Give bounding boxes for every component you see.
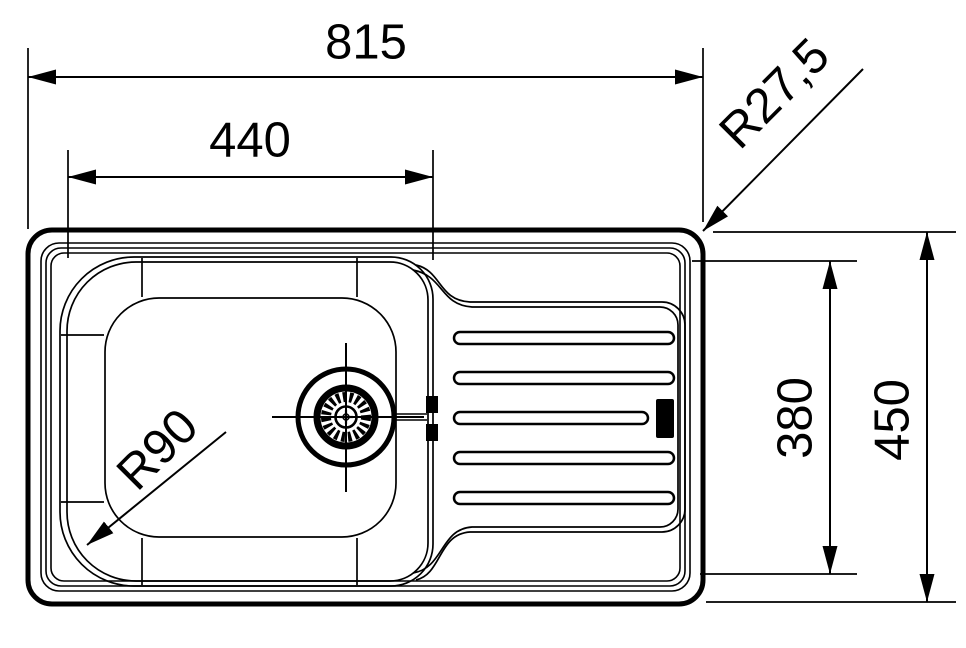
drain-hub-cross (339, 410, 353, 424)
overall-width-label: 815 (325, 19, 407, 68)
overall-depth-label: 450 (869, 379, 918, 461)
drawing-linework (0, 0, 966, 648)
overflow-mark (394, 396, 438, 441)
drainer-groove (454, 332, 674, 344)
drainer-groove (454, 372, 674, 384)
extension-lines (28, 48, 956, 602)
inner-depth-label: 380 (772, 377, 821, 459)
drainer-groove (454, 492, 674, 504)
drainer-groove (454, 452, 674, 464)
sink-technical-drawing: 815 440 R27,5 R90 380 450 (0, 0, 966, 648)
drainer-groove (454, 412, 648, 424)
drainer-outlet-mark (656, 399, 674, 438)
drainer-grooves (454, 332, 674, 504)
dimension-lines (28, 69, 927, 602)
drainer-inner-contour (413, 270, 678, 573)
bowl-width-label: 440 (209, 117, 291, 166)
